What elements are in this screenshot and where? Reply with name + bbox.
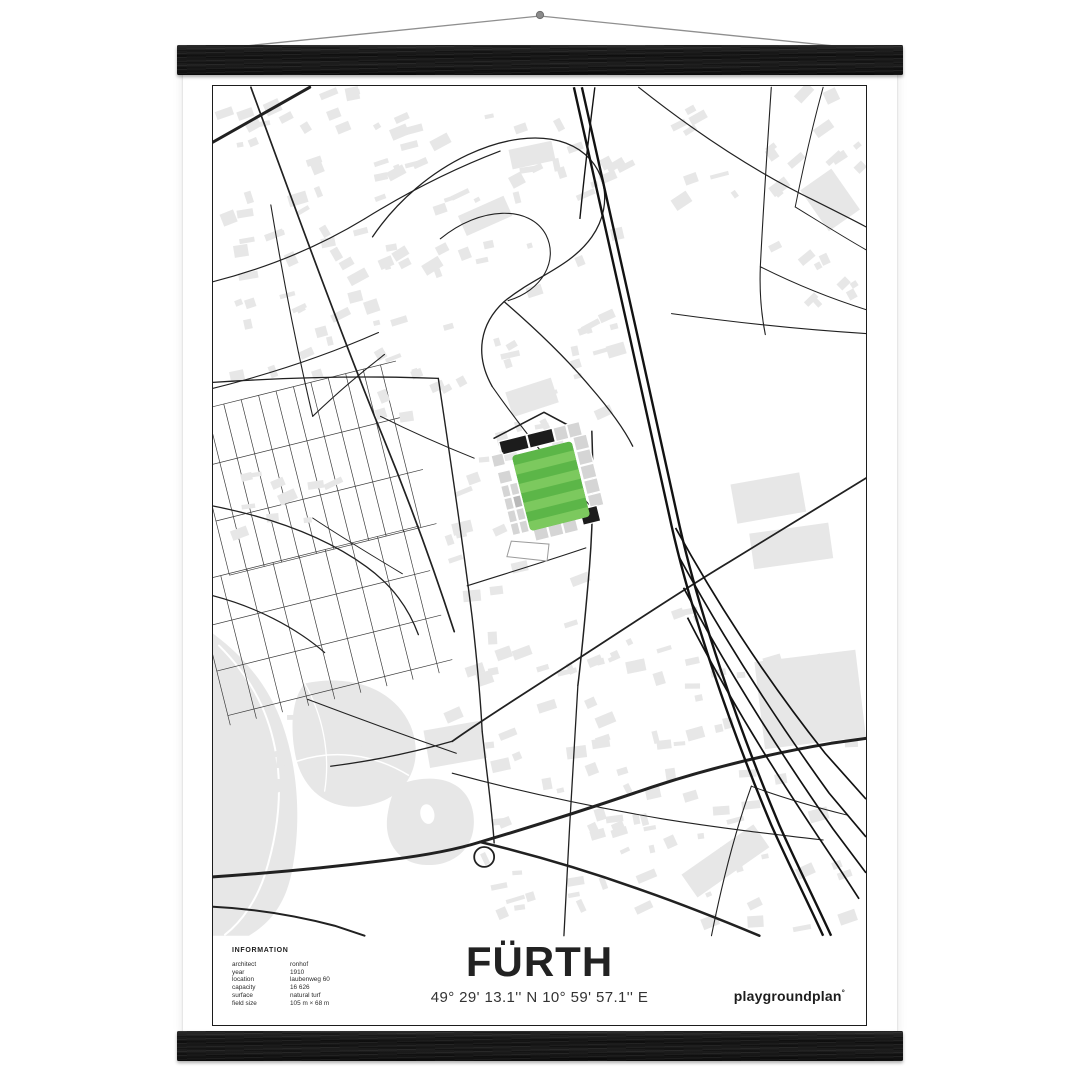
brand-text: playgroundplan xyxy=(734,988,842,1004)
brand-logo: playgroundplan° xyxy=(734,988,845,1004)
nail-pin xyxy=(536,11,543,18)
map-green-areas xyxy=(213,634,474,936)
map-frame: INFORMATION architectronhofyear1910locat… xyxy=(212,85,867,1026)
bottom-hanger-bar xyxy=(177,1031,903,1061)
poster-paper: INFORMATION architectronhofyear1910locat… xyxy=(183,58,897,1033)
map-stadium xyxy=(479,421,613,571)
brand-mark: ° xyxy=(842,988,845,997)
page-title: FÜRTH xyxy=(213,939,866,985)
stadium-map xyxy=(213,86,866,937)
top-hanger-bar xyxy=(177,45,903,75)
wall: INFORMATION architectronhofyear1910locat… xyxy=(0,0,1080,1080)
